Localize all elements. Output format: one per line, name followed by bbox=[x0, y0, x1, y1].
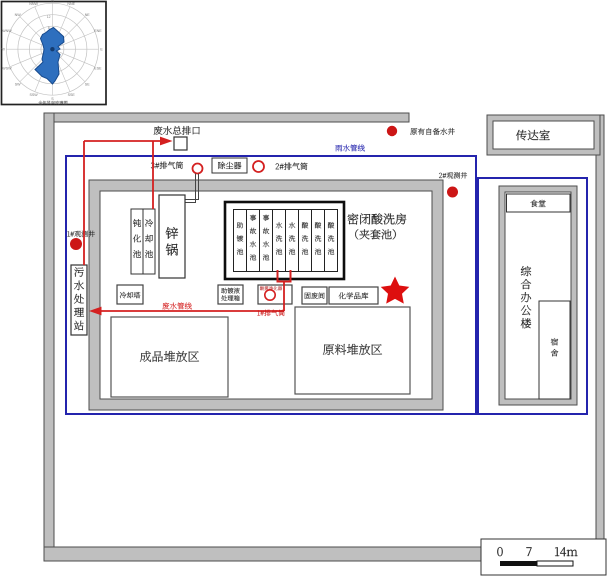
svg-text:NE: NE bbox=[85, 13, 91, 17]
svg-text:N: N bbox=[51, 0, 54, 2]
svg-text:ESE: ESE bbox=[94, 66, 102, 70]
svg-text:WSW: WSW bbox=[2, 66, 12, 70]
svg-text:W: W bbox=[1, 48, 5, 52]
svg-text:NNW: NNW bbox=[29, 2, 38, 6]
svg-text:12: 12 bbox=[47, 15, 51, 19]
svg-text:NNE: NNE bbox=[67, 2, 75, 6]
svg-text:ENE: ENE bbox=[94, 29, 102, 33]
svg-text:WNW: WNW bbox=[2, 29, 12, 33]
svg-text:SSW: SSW bbox=[30, 93, 39, 97]
svg-text:NW: NW bbox=[15, 13, 22, 17]
svg-text:SSE: SSE bbox=[68, 93, 76, 97]
svg-text:SE: SE bbox=[85, 82, 90, 86]
svg-text:SW: SW bbox=[15, 82, 21, 86]
